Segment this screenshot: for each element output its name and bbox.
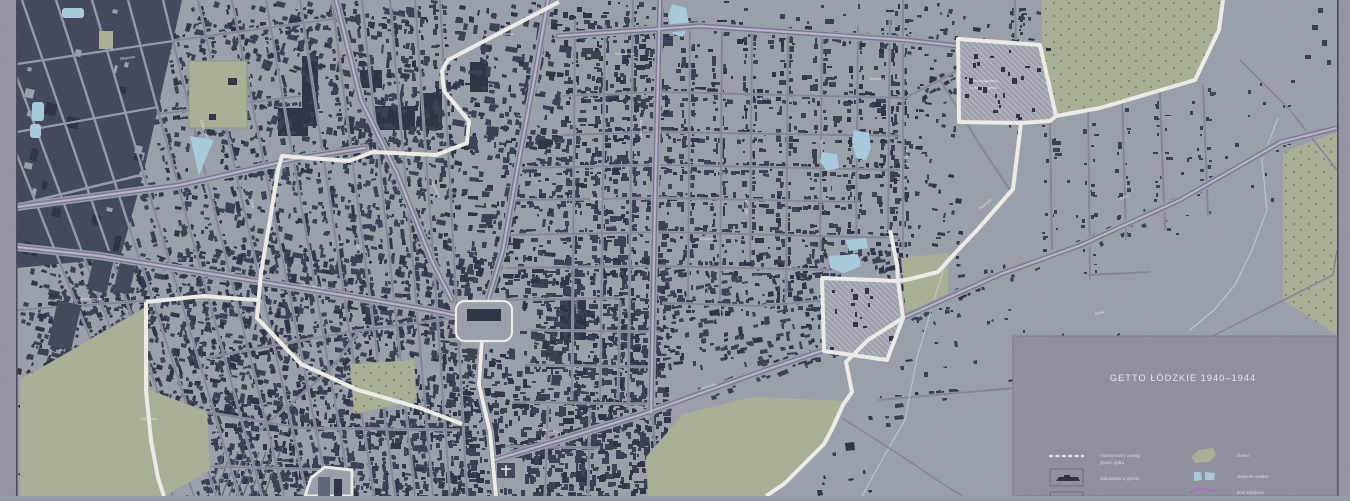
svg-text:Wrzesnienska: Wrzesnienska	[80, 297, 103, 301]
svg-text:zbiorniki wodne: zbiorniki wodne	[1237, 474, 1269, 479]
svg-text:zabudowa w getcie: zabudowa w getcie	[1100, 476, 1140, 481]
svg-text:granic getta: granic getta	[1100, 460, 1124, 465]
svg-text:Sukiennicza: Sukiennicza	[615, 52, 634, 56]
svg-text:Wojska: Wojska	[590, 197, 602, 201]
svg-text:zieleń: zieleń	[1237, 453, 1249, 458]
svg-text:linie kolejowe: linie kolejowe	[1237, 490, 1265, 495]
svg-text:Marysinska: Marysinska	[639, 120, 643, 138]
svg-text:Chlodna: Chlodna	[500, 32, 513, 36]
svg-text:GETTO ŁÓDZKIE 1940–1944: GETTO ŁÓDZKIE 1940–1944	[1110, 373, 1256, 383]
svg-text:Miodowa: Miodowa	[744, 200, 749, 215]
svg-text:Staszica: Staszica	[760, 97, 774, 101]
svg-text:maksymalny zasięg: maksymalny zasięg	[1100, 453, 1141, 458]
svg-text:Goplanska: Goplanska	[700, 237, 717, 241]
svg-text:Inflancka: Inflancka	[870, 77, 884, 81]
svg-text:Ogrodowa: Ogrodowa	[140, 417, 157, 421]
